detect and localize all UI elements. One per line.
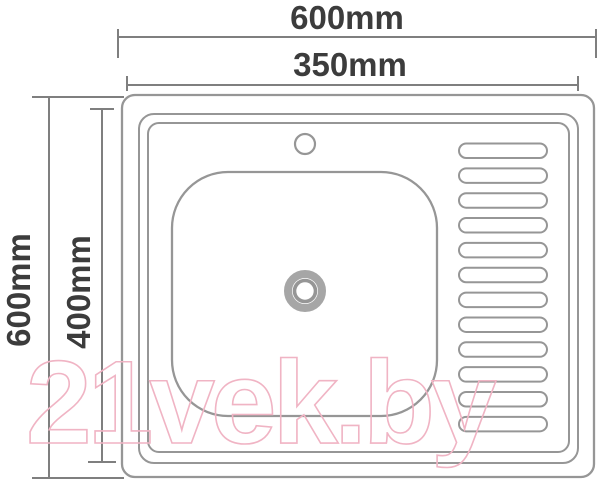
sink-outer-edge	[122, 95, 594, 477]
drainboard-groove	[459, 243, 547, 258]
dimension-lines	[32, 29, 596, 478]
dim-label-overall-width: 600mm	[97, 1, 597, 35]
dim-label-overall-depth: 600mm	[2, 220, 36, 360]
dim-label-inner-depth: 400mm	[62, 222, 96, 362]
drain-hole	[295, 281, 316, 302]
drainboard-groove	[459, 144, 547, 159]
dim-label-inner-width: 350mm	[100, 48, 600, 82]
drainboard-groove	[459, 417, 547, 432]
drainboard-groove	[459, 342, 547, 357]
drainboard-groove	[459, 218, 547, 233]
drainboard-grooves	[459, 144, 547, 432]
sink-basin	[172, 172, 437, 416]
faucet-hole	[295, 134, 315, 154]
sink-dimension-diagram: 600mm 350mm 600mm 400mm 21vek.by	[0, 0, 600, 483]
drainboard-groove	[459, 268, 547, 283]
drainboard-groove	[459, 392, 547, 407]
drainboard-groove	[459, 293, 547, 308]
drainboard-groove	[459, 168, 547, 183]
drainboard-groove	[459, 317, 547, 332]
drainboard-groove	[459, 193, 547, 208]
drainboard-groove	[459, 367, 547, 382]
sink-body	[122, 95, 594, 477]
